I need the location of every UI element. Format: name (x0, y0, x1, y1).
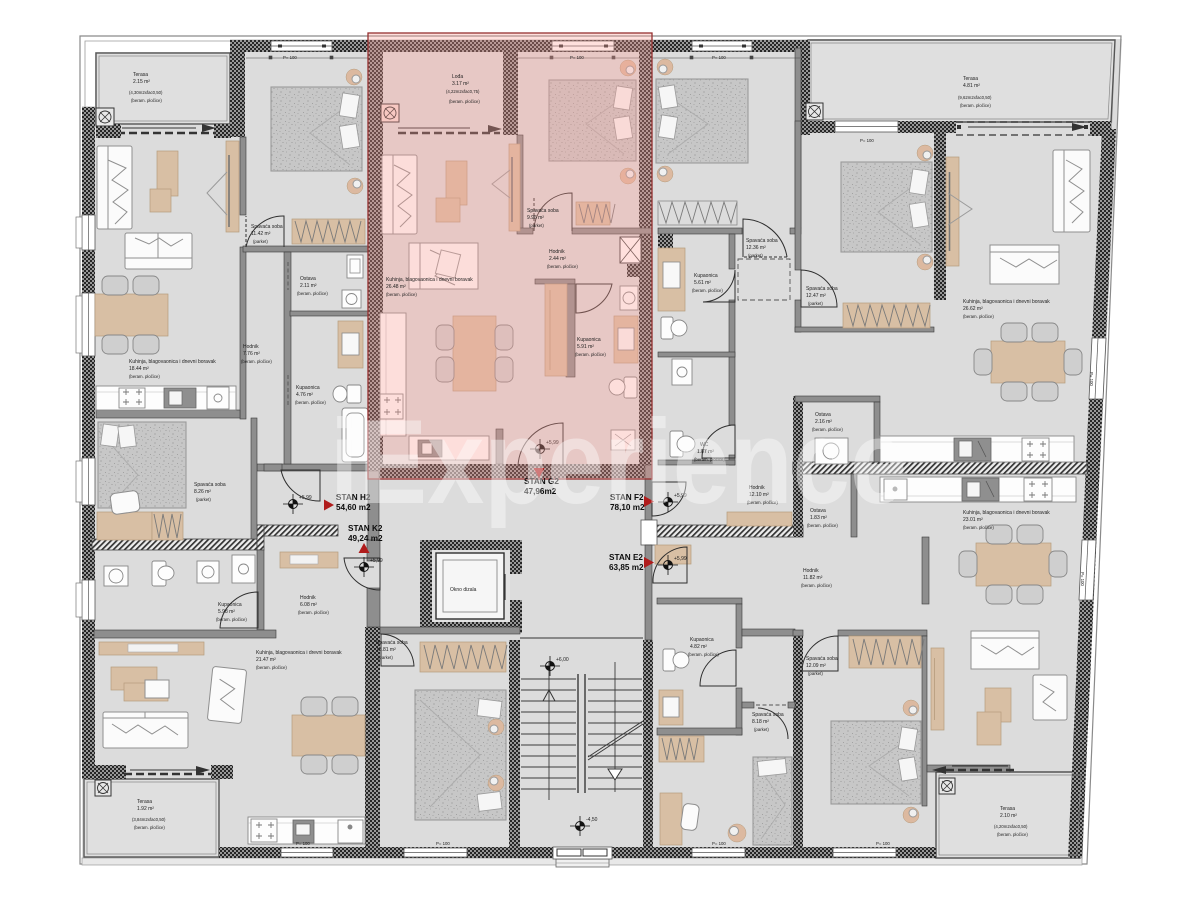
svg-text:Spavaća soba: Spavaća soba (376, 640, 408, 646)
svg-text:Kupaonica: Kupaonica (694, 273, 718, 279)
svg-text:12.09 m²: 12.09 m² (806, 663, 826, 669)
svg-text:Hodnik: Hodnik (549, 249, 565, 255)
svg-text:P= 100: P= 100 (283, 55, 297, 60)
svg-text:(beram. pločice): (beram. pločice) (131, 98, 162, 103)
svg-text:Terasa: Terasa (1000, 806, 1015, 812)
svg-text:7.76 m²: 7.76 m² (243, 351, 260, 357)
svg-text:Terasa: Terasa (963, 76, 978, 82)
svg-text:(beram. pločice): (beram. pločice) (129, 374, 160, 379)
svg-text:Spavaća soba: Spavaća soba (527, 208, 559, 214)
svg-text:(beram. pločice): (beram. pločice) (688, 652, 719, 657)
svg-text:Kuhinja, blagovaonica i dnevni: Kuhinja, blagovaonica i dnevni boravak (386, 277, 473, 283)
svg-text:Kupaonica: Kupaonica (218, 602, 242, 608)
svg-text:(beram. pločice): (beram. pločice) (963, 314, 994, 319)
svg-text:11.82 m²: 11.82 m² (803, 575, 823, 581)
svg-text:(parket): (parket) (748, 253, 763, 258)
svg-text:(beram. pločice): (beram. pločice) (295, 400, 326, 405)
svg-text:(3,84m2xfac0,50): (3,84m2xfac0,50) (132, 817, 166, 822)
svg-text:Spavaća soba: Spavaća soba (752, 712, 784, 718)
svg-text:(beram. pločice): (beram. pločice) (692, 288, 723, 293)
svg-text:iExperience: iExperience (330, 395, 907, 529)
svg-text:(beram. pločice): (beram. pločice) (134, 825, 165, 830)
svg-text:(4,20m2xfac0,50): (4,20m2xfac0,50) (994, 824, 1028, 829)
svg-text:Kupaonica: Kupaonica (577, 337, 601, 343)
svg-text:12.47 m²: 12.47 m² (806, 293, 826, 299)
svg-text:13.81 m²: 13.81 m² (376, 647, 396, 653)
svg-text:Spavaća soba: Spavaća soba (806, 656, 838, 662)
svg-text:23.01 m²: 23.01 m² (963, 517, 983, 523)
svg-text:(beram. pločice): (beram. pločice) (575, 352, 606, 357)
svg-text:Ostava: Ostava (300, 276, 316, 282)
svg-text:P= 100: P= 100 (436, 841, 450, 846)
svg-text:(parket): (parket) (808, 301, 823, 306)
svg-text:Kuhinja, blagovaonica i dnevni: Kuhinja, blagovaonica i dnevni boravak (963, 510, 1050, 516)
svg-text:5.91 m²: 5.91 m² (577, 344, 594, 350)
svg-text:3.17 m²: 3.17 m² (452, 81, 469, 87)
svg-text:P= 100: P= 100 (570, 55, 584, 60)
svg-text:2.15 m²: 2.15 m² (133, 79, 150, 85)
svg-text:(beram. pločice): (beram. pločice) (960, 103, 991, 108)
svg-text:21.47 m²: 21.47 m² (256, 657, 276, 663)
svg-text:63,85 m2: 63,85 m2 (609, 563, 644, 572)
svg-text:(beram. pločice): (beram. pločice) (241, 359, 272, 364)
svg-text:P= 100: P= 100 (1089, 372, 1094, 386)
svg-text:49,24 m2: 49,24 m2 (348, 534, 383, 543)
svg-text:+5,99: +5,99 (370, 558, 383, 564)
svg-text:(beram. pločice): (beram. pločice) (256, 665, 287, 670)
svg-text:2.44 m²: 2.44 m² (549, 256, 566, 262)
svg-text:STAN E2: STAN E2 (609, 553, 643, 562)
svg-text:Kupaonica: Kupaonica (690, 637, 714, 643)
svg-text:Spavaća soba: Spavaća soba (251, 224, 283, 230)
svg-text:5.61 m²: 5.61 m² (694, 280, 711, 286)
svg-text:(beram. pločice): (beram. pločice) (547, 264, 578, 269)
svg-text:(beram. pločice): (beram. pločice) (216, 617, 247, 622)
svg-text:Kuhinja, blagovaonica i dnevni: Kuhinja, blagovaonica i dnevni boravak (129, 359, 216, 365)
svg-text:(beram. pločice): (beram. pločice) (298, 610, 329, 615)
svg-text:+5,99: +5,99 (674, 556, 687, 562)
svg-text:(beram. pločice): (beram. pločice) (801, 583, 832, 588)
svg-text:18.44 m²: 18.44 m² (129, 366, 149, 372)
svg-text:-4,50: -4,50 (586, 817, 598, 823)
svg-text:Hodnik: Hodnik (300, 595, 316, 601)
svg-text:4.76 m²: 4.76 m² (296, 392, 313, 398)
svg-text:Kuhinja, blagovaonica i drevni: Kuhinja, blagovaonica i drevni boravak (256, 650, 342, 656)
svg-text:8.18 m²: 8.18 m² (752, 719, 769, 725)
svg-text:(beram. pločice): (beram. pločice) (963, 525, 994, 530)
svg-text:8.26 m²: 8.26 m² (194, 489, 211, 495)
svg-text:(9,62m2xfac0,50): (9,62m2xfac0,50) (958, 95, 992, 100)
svg-text:P= 100: P= 100 (712, 841, 726, 846)
svg-text:(4,22m2xfac0,75): (4,22m2xfac0,75) (446, 89, 480, 94)
svg-text:6.08 m²: 6.08 m² (300, 602, 317, 608)
svg-text:(parket): (parket) (253, 239, 268, 244)
svg-text:(beram. pločice): (beram. pločice) (997, 832, 1028, 837)
svg-text:(beram. pločice): (beram. pločice) (297, 291, 328, 296)
svg-text:2.10 m²: 2.10 m² (1000, 813, 1017, 819)
svg-text:(beram. pločice): (beram. pločice) (386, 292, 417, 297)
svg-text:(parket): (parket) (529, 223, 544, 228)
svg-text:Spavaća soba: Spavaća soba (746, 238, 778, 244)
svg-text:2.11 m²: 2.11 m² (300, 283, 317, 289)
svg-text:Terasa: Terasa (133, 72, 148, 78)
svg-text:P= 100: P= 100 (296, 841, 310, 846)
svg-text:Spavaća soba: Spavaća soba (194, 482, 226, 488)
svg-text:Kuhinja, blagovaonica i dnevni: Kuhinja, blagovaonica i dnevni boravak (963, 299, 1050, 305)
svg-text:Kupaonica: Kupaonica (296, 385, 320, 391)
svg-text:+5,99: +5,99 (299, 495, 312, 501)
svg-text:Terasa: Terasa (137, 799, 152, 805)
svg-text:(parket): (parket) (808, 671, 823, 676)
svg-text:(parket): (parket) (754, 727, 769, 732)
svg-text:P= 100: P= 100 (1080, 572, 1085, 586)
svg-text:P= 100: P= 100 (876, 841, 890, 846)
svg-text:Spavaća soba: Spavaća soba (806, 286, 838, 292)
svg-text:Lođa: Lođa (452, 74, 463, 80)
svg-text:26.48 m²: 26.48 m² (386, 284, 406, 290)
svg-text:Hodnik: Hodnik (243, 344, 259, 350)
svg-text:P= 100: P= 100 (860, 138, 874, 143)
svg-text:(beram. pločice): (beram. pločice) (449, 99, 480, 104)
svg-text:4.82 m²: 4.82 m² (690, 644, 707, 650)
svg-text:(4,30m2xfac0,50): (4,30m2xfac0,50) (129, 90, 163, 95)
svg-text:4.81 m²: 4.81 m² (963, 83, 980, 89)
svg-text:Okno dizala: Okno dizala (450, 587, 477, 593)
svg-text:1.92 m²: 1.92 m² (137, 806, 154, 812)
svg-text:5.98 m²: 5.98 m² (218, 609, 235, 615)
svg-text:9.96 m²: 9.96 m² (527, 215, 544, 221)
svg-text:P= 100: P= 100 (712, 55, 726, 60)
svg-text:11.42 m²: 11.42 m² (251, 231, 271, 237)
svg-text:(parket): (parket) (378, 655, 393, 660)
svg-text:+6,00: +6,00 (556, 657, 569, 663)
svg-text:Hodnik: Hodnik (803, 568, 819, 574)
svg-text:26.62 m²: 26.62 m² (963, 306, 983, 312)
svg-text:(parket): (parket) (196, 497, 211, 502)
svg-text:12.36 m²: 12.36 m² (746, 245, 766, 251)
